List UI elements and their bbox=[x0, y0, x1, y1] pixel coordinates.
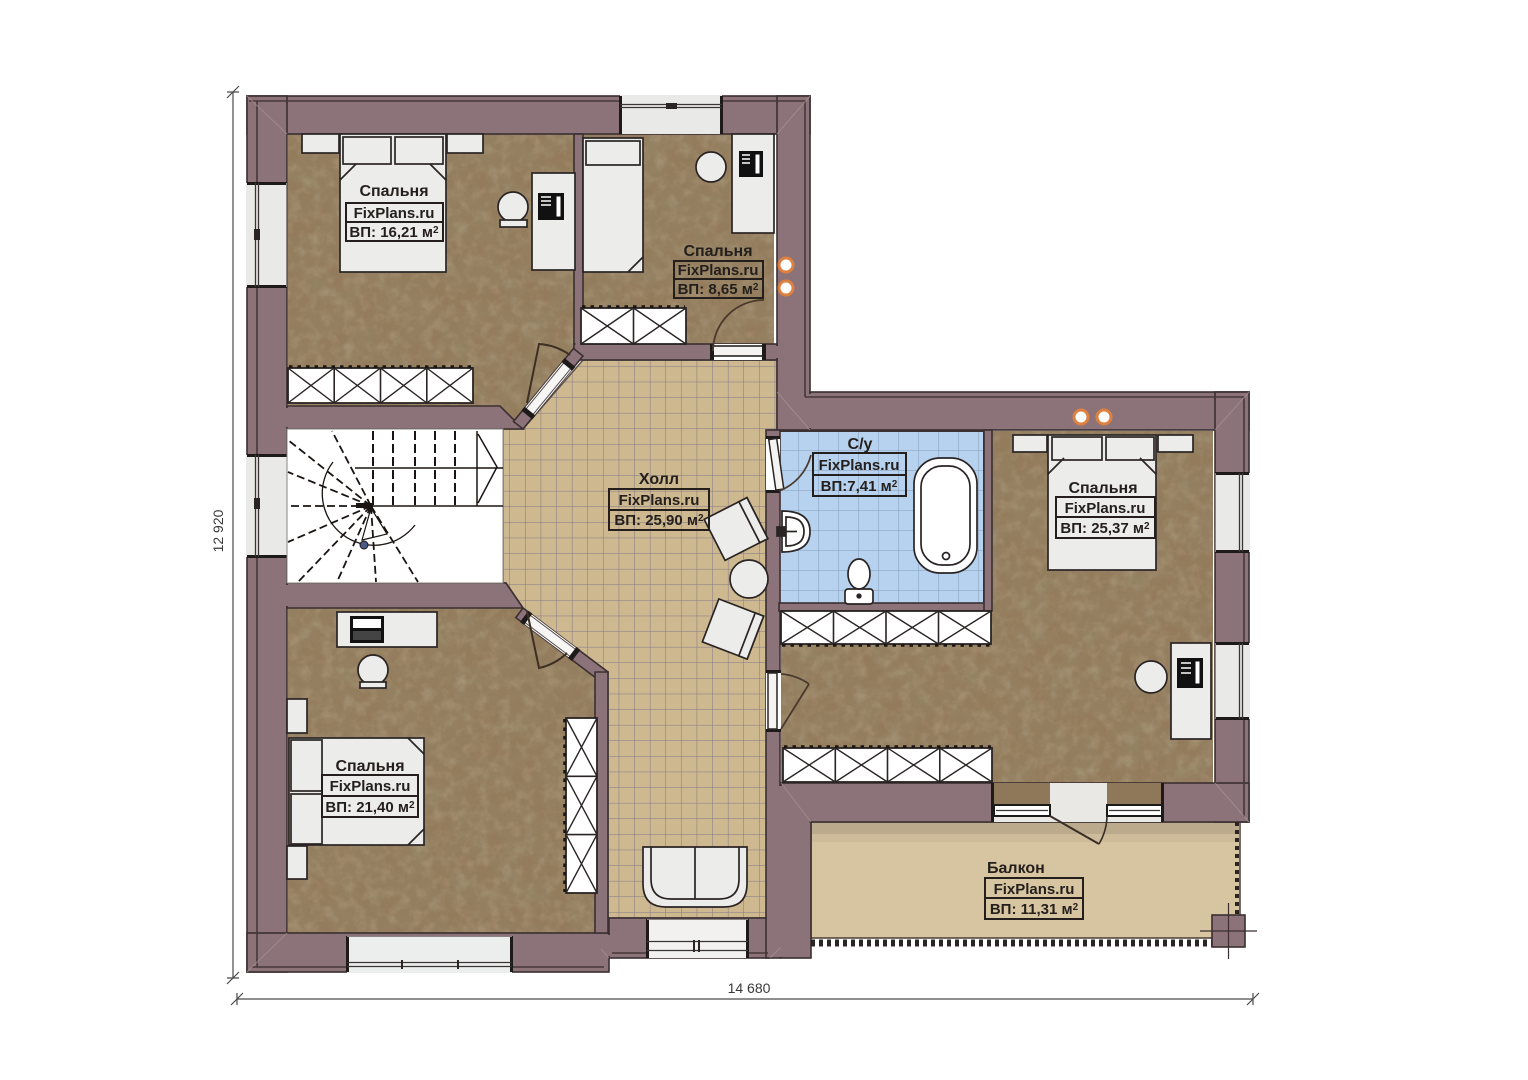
svg-text:Холл: Холл bbox=[639, 471, 679, 488]
svg-text:С/у: С/у bbox=[848, 436, 873, 453]
svg-text:ВП: 25,37 м2: ВП: 25,37 м2 bbox=[1060, 520, 1150, 537]
svg-text:FixPlans.ru: FixPlans.ru bbox=[1065, 500, 1146, 517]
svg-text:ВП: 25,90 м2: ВП: 25,90 м2 bbox=[614, 512, 704, 529]
svg-text:ВП: 21,40 м2: ВП: 21,40 м2 bbox=[325, 799, 415, 816]
svg-text:Спальня: Спальня bbox=[335, 758, 404, 775]
svg-text:FixPlans.ru: FixPlans.ru bbox=[330, 778, 411, 795]
svg-text:FixPlans.ru: FixPlans.ru bbox=[994, 881, 1075, 898]
svg-text:12 920: 12 920 bbox=[210, 509, 226, 552]
svg-text:ВП: 11,31 м2: ВП: 11,31 м2 bbox=[990, 901, 1079, 918]
svg-text:14 680: 14 680 bbox=[728, 980, 771, 996]
svg-text:Спальня: Спальня bbox=[359, 183, 428, 200]
svg-text:ВП: 8,65 м2: ВП: 8,65 м2 bbox=[678, 281, 759, 298]
svg-text:Спальня: Спальня bbox=[1068, 480, 1137, 497]
svg-text:Спальня: Спальня bbox=[683, 243, 752, 260]
svg-text:FixPlans.ru: FixPlans.ru bbox=[354, 205, 435, 222]
svg-text:FixPlans.ru: FixPlans.ru bbox=[819, 457, 900, 474]
svg-text:ВП:7,41 м2: ВП:7,41 м2 bbox=[821, 478, 898, 495]
svg-text:Балкон: Балкон bbox=[987, 860, 1045, 877]
svg-text:FixPlans.ru: FixPlans.ru bbox=[678, 262, 759, 279]
svg-text:ВП: 16,21 м2: ВП: 16,21 м2 bbox=[349, 224, 439, 241]
svg-text:FixPlans.ru: FixPlans.ru bbox=[619, 492, 700, 509]
